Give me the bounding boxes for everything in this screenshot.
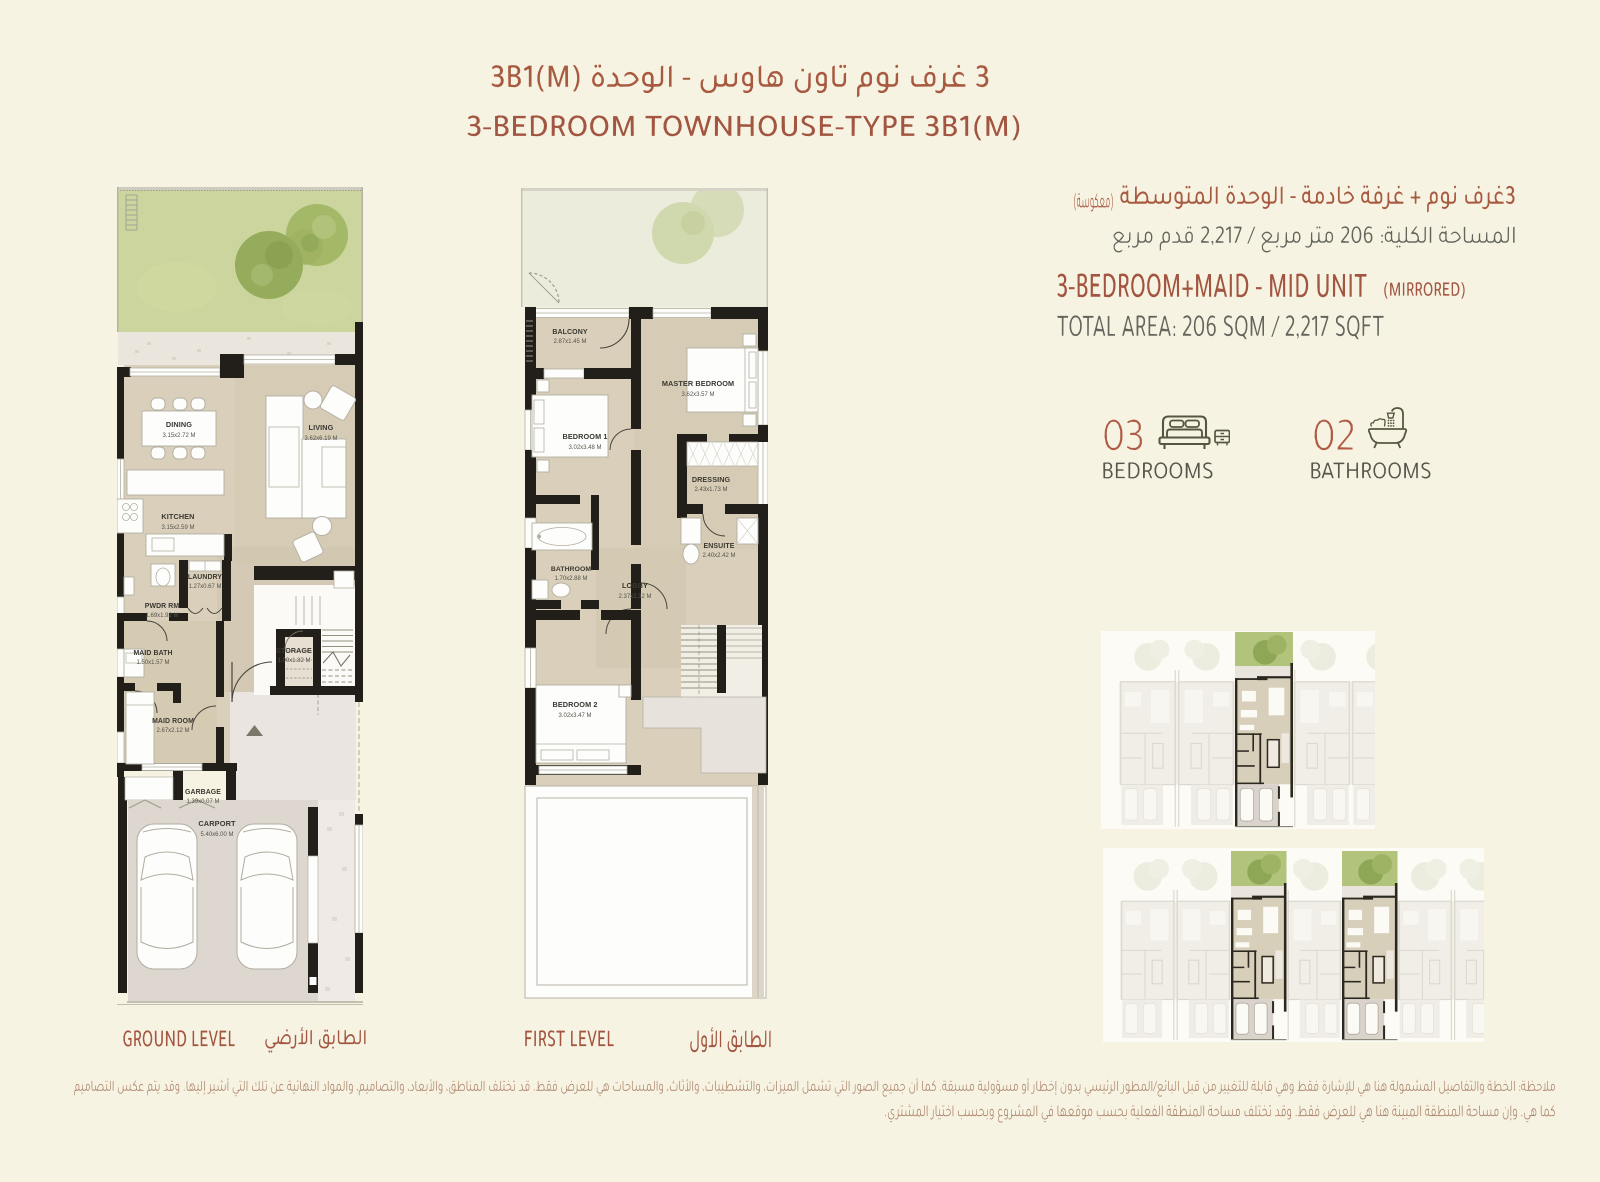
svg-text:2.43x1.73 M: 2.43x1.73 M [694, 487, 727, 493]
svg-text:5.40x6.00 M: 5.40x6.00 M [200, 832, 233, 838]
svg-text:LIVING: LIVING [309, 423, 334, 432]
svg-text:BEDROOM 1: BEDROOM 1 [562, 432, 607, 441]
svg-text:1.50x1.57 M: 1.50x1.57 M [136, 660, 169, 666]
svg-text:KITCHEN: KITCHEN [161, 512, 194, 521]
svg-text:ENSUITE: ENSUITE [703, 543, 734, 550]
svg-text:3.15x2.59 M: 3.15x2.59 M [161, 525, 194, 531]
svg-text:1.00x1.82 M: 1.00x1.82 M [277, 658, 310, 664]
svg-text:BATHROOM: BATHROOM [551, 566, 592, 573]
svg-text:STORAGE: STORAGE [276, 647, 312, 655]
svg-text:PWDR RM: PWDR RM [145, 603, 180, 610]
svg-text:DINING: DINING [166, 420, 192, 429]
svg-text:1.69x1.92 M: 1.69x1.92 M [145, 613, 178, 619]
svg-text:3.02x3.47 M: 3.02x3.47 M [558, 713, 591, 719]
svg-text:BALCONY: BALCONY [552, 329, 588, 336]
svg-text:GARBAGE: GARBAGE [185, 789, 221, 796]
svg-text:1.70x2.88 M: 1.70x2.88 M [554, 576, 587, 582]
svg-text:MAID BATH: MAID BATH [133, 650, 172, 657]
svg-text:3.62x3.57 M: 3.62x3.57 M [681, 392, 714, 398]
svg-text:MAID ROOM: MAID ROOM [152, 718, 194, 725]
svg-text:2.40x2.42 M: 2.40x2.42 M [702, 553, 735, 559]
svg-text:1.27x0.67 M: 1.27x0.67 M [188, 584, 221, 590]
svg-text:3.62x6.19 M: 3.62x6.19 M [304, 436, 337, 442]
svg-text:3.15x2.72 M: 3.15x2.72 M [162, 433, 195, 439]
svg-text:1.39x0.07 M: 1.39x0.07 M [186, 799, 219, 805]
svg-text:LAUNDRY: LAUNDRY [188, 574, 222, 581]
svg-text:BEDROOM 2: BEDROOM 2 [552, 700, 597, 709]
svg-text:CARPORT: CARPORT [198, 819, 236, 828]
svg-text:DRESSING: DRESSING [692, 475, 731, 484]
svg-text:2.67x2.12 M: 2.67x2.12 M [156, 728, 189, 734]
svg-text:LOBBY: LOBBY [622, 581, 648, 590]
svg-text:2.87x1.45 M: 2.87x1.45 M [553, 339, 586, 345]
svg-text:2.37x2.32 M: 2.37x2.32 M [618, 594, 651, 600]
svg-text:3.02x3.48 M: 3.02x3.48 M [568, 445, 601, 451]
svg-text:MASTER BEDROOM: MASTER BEDROOM [662, 379, 734, 388]
